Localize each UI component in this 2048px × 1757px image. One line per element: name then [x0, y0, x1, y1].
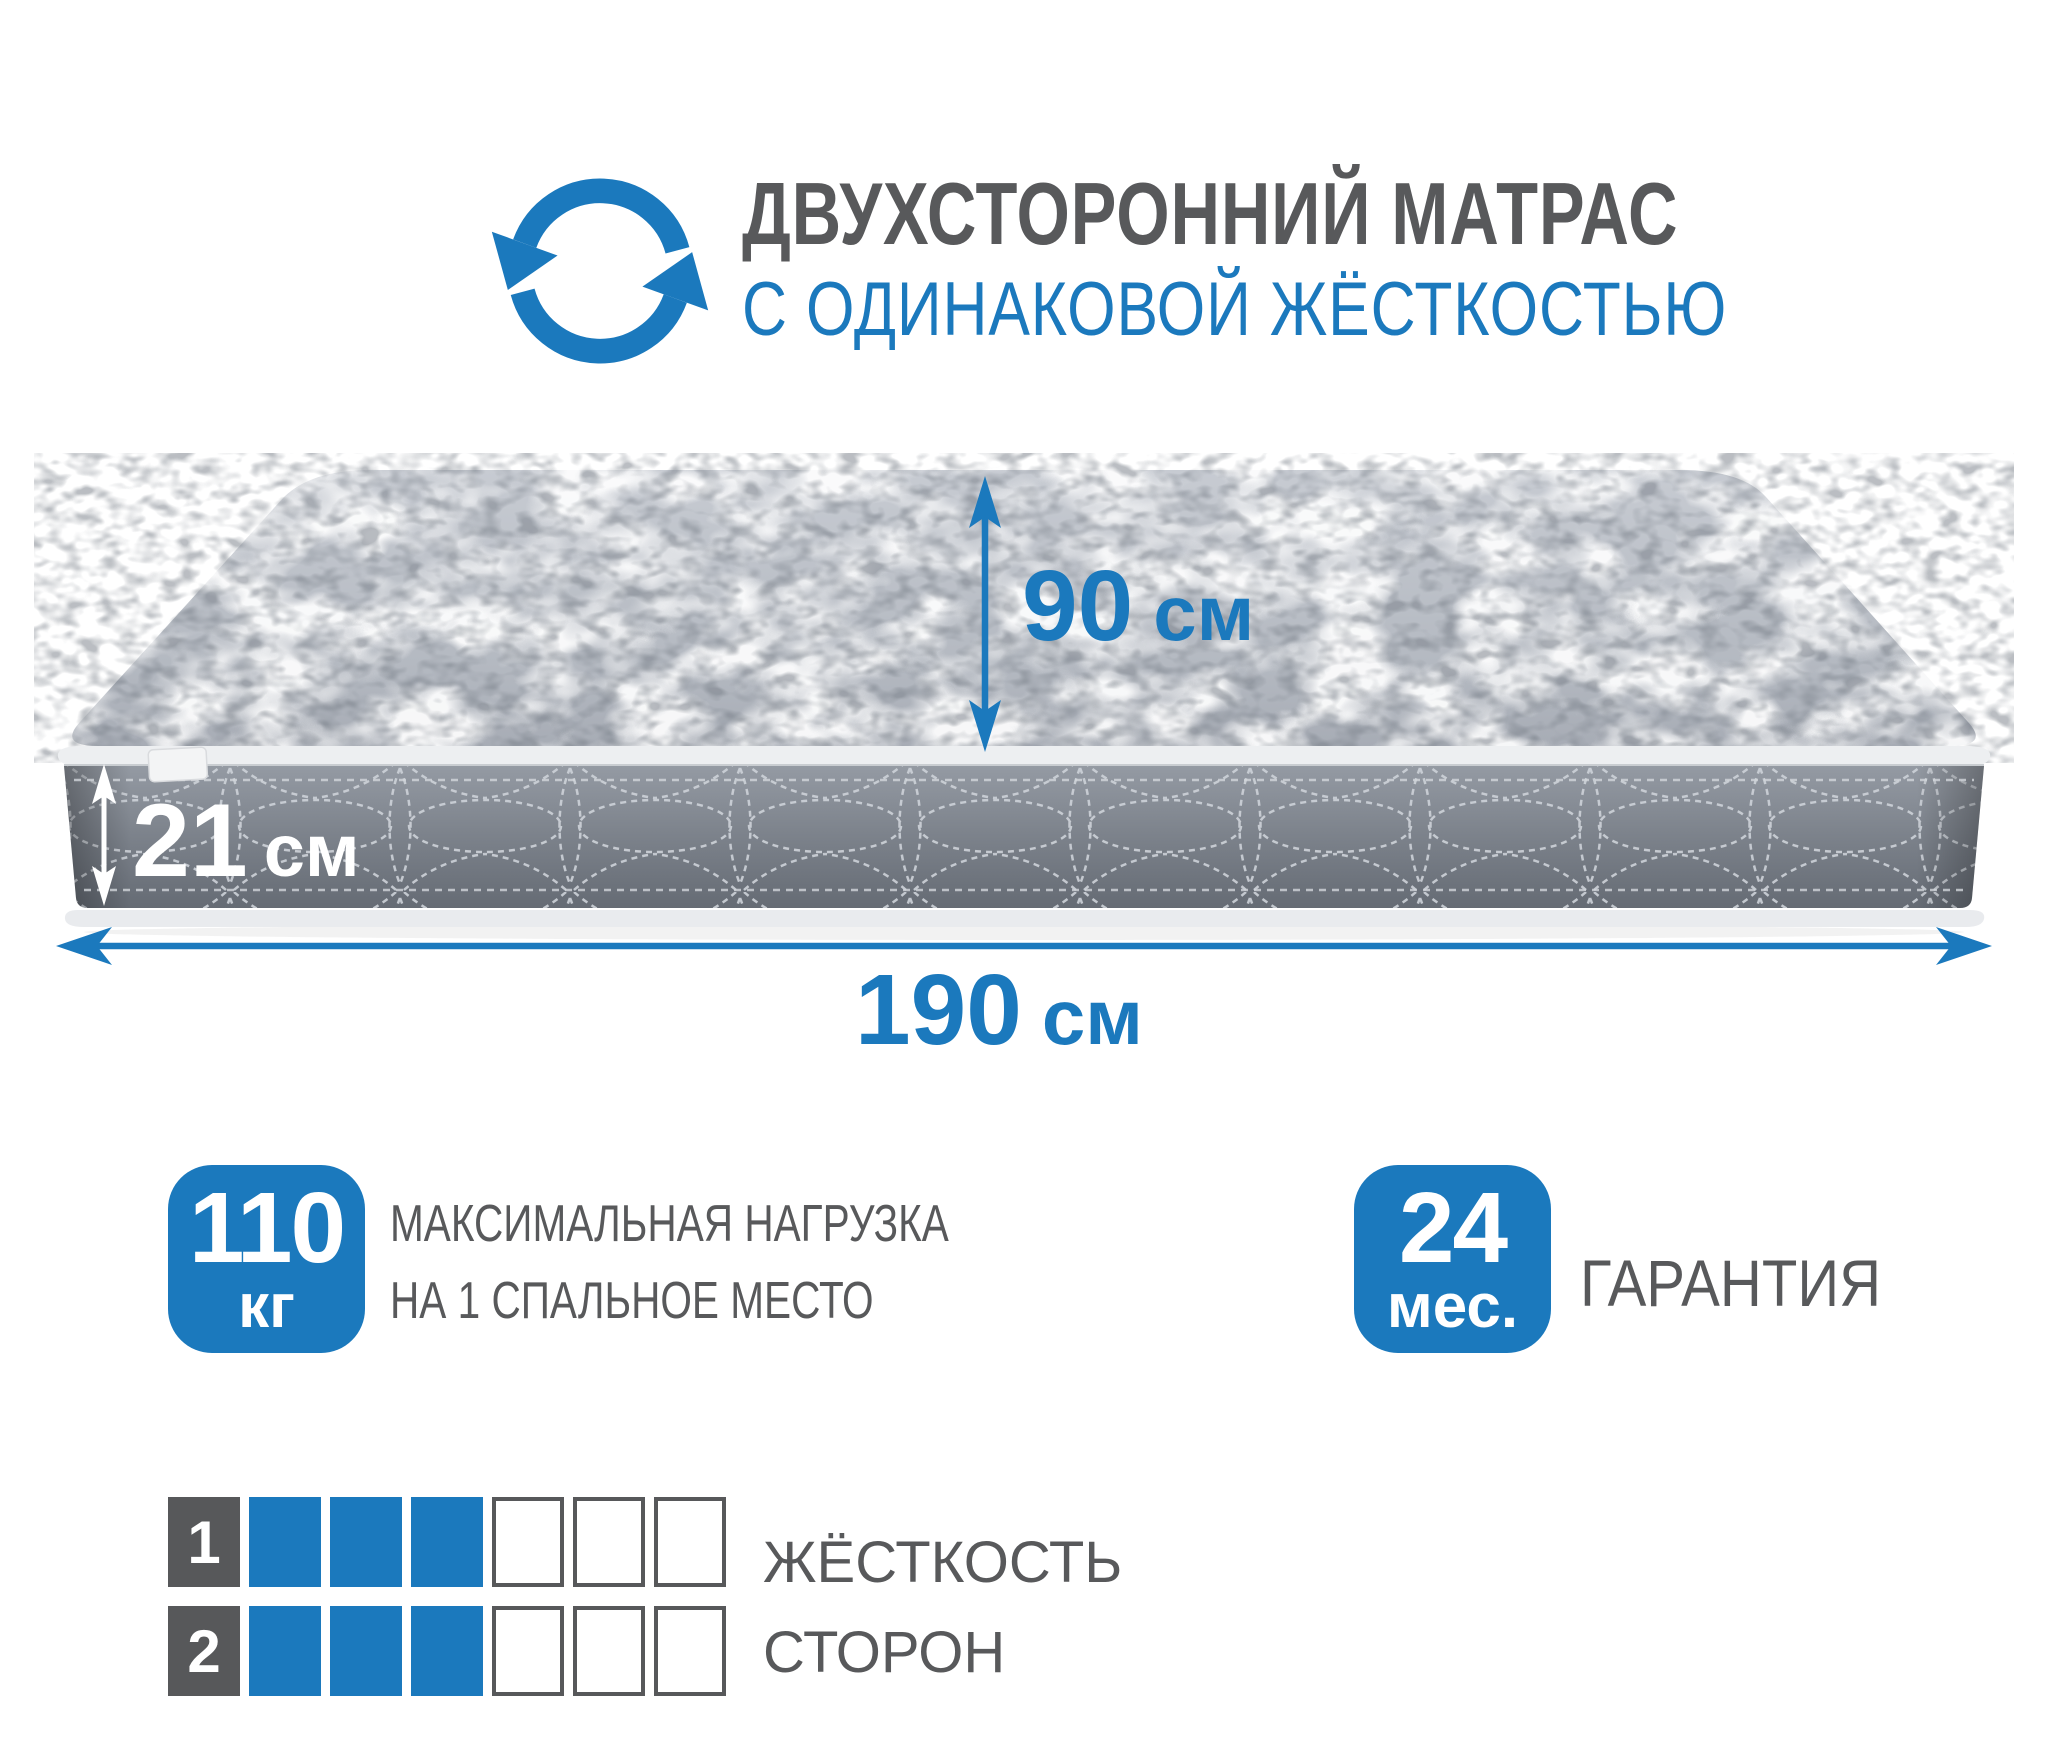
firmness-row-side2: 2: [168, 1606, 726, 1696]
max-load-unit: кг: [238, 1276, 295, 1338]
max-load-label-line2: НА 1 СПАЛЬНОЕ МЕСТО: [390, 1263, 949, 1340]
max-load-badge: 110 кг: [168, 1165, 365, 1353]
firmness-row-side1: 1: [168, 1497, 726, 1587]
firmness-cell: [411, 1497, 483, 1587]
firmness-cell: [654, 1497, 726, 1587]
firmness-cell: [330, 1606, 402, 1696]
firmness-cell: [330, 1497, 402, 1587]
firmness-cell: [654, 1606, 726, 1696]
warranty-value: 24: [1399, 1181, 1506, 1276]
max-load-value: 110: [189, 1181, 344, 1276]
side-number-badge: 1: [168, 1497, 240, 1587]
firmness-cell: [492, 1606, 564, 1696]
firmness-label-line1: ЖЁСТКОСТЬ: [763, 1529, 1122, 1596]
firmness-cells-side1: [249, 1497, 726, 1587]
firmness-cell: [492, 1497, 564, 1587]
length-dimension-annotation: 190см: [56, 927, 1992, 1066]
firmness-cells-side2: [249, 1606, 726, 1696]
mattress-illustration: 90см 21см 190см: [0, 0, 2048, 1100]
warranty-unit: мес.: [1387, 1276, 1518, 1338]
firmness-cell: [573, 1606, 645, 1696]
mattress-infographic: ДВУХСТОРОННИЙ МАТРАС С ОДИНАКОВОЙ ЖЁСТКО…: [0, 0, 2048, 1757]
length-dimension-label: 190см: [855, 954, 1143, 1066]
max-load-label-line1: МАКСИМАЛЬНАЯ НАГРУЗКА: [390, 1186, 949, 1263]
max-load-label: МАКСИМАЛЬНАЯ НАГРУЗКА НА 1 СПАЛЬНОЕ МЕСТ…: [390, 1186, 949, 1340]
firmness-cell: [249, 1497, 321, 1587]
warranty-label: ГАРАНТИЯ: [1580, 1245, 1881, 1321]
mattress-bottom-piping: [65, 910, 1984, 940]
firmness-cell: [573, 1497, 645, 1587]
side-number-badge: 2: [168, 1606, 240, 1696]
mattress-tag: [148, 747, 208, 782]
mattress-top-piping: [58, 746, 1990, 766]
warranty-badge: 24 мес.: [1354, 1165, 1551, 1353]
firmness-scale: 1 2: [168, 1497, 726, 1696]
firmness-cell: [411, 1606, 483, 1696]
firmness-label-line2: СТОРОН: [763, 1619, 1005, 1686]
firmness-cell: [249, 1606, 321, 1696]
